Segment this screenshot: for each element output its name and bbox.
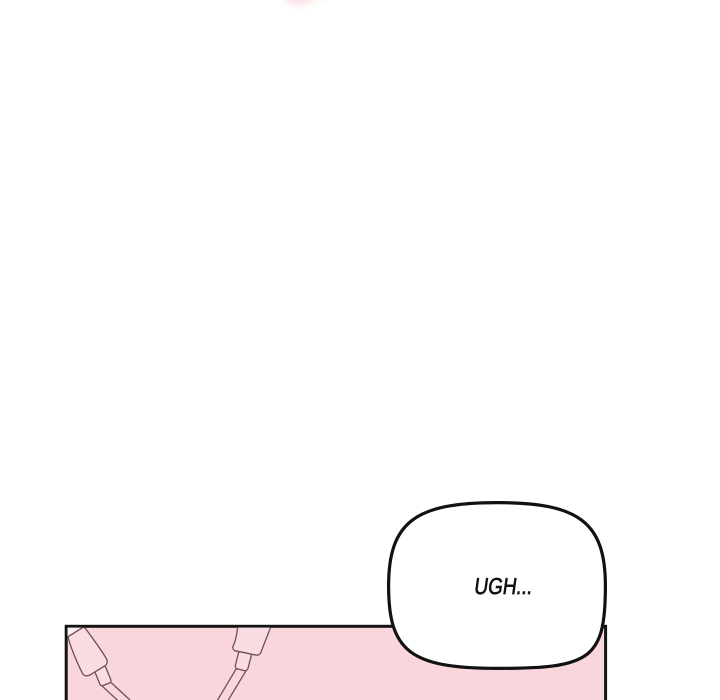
svg-text:UGH...: UGH... (473, 573, 535, 599)
